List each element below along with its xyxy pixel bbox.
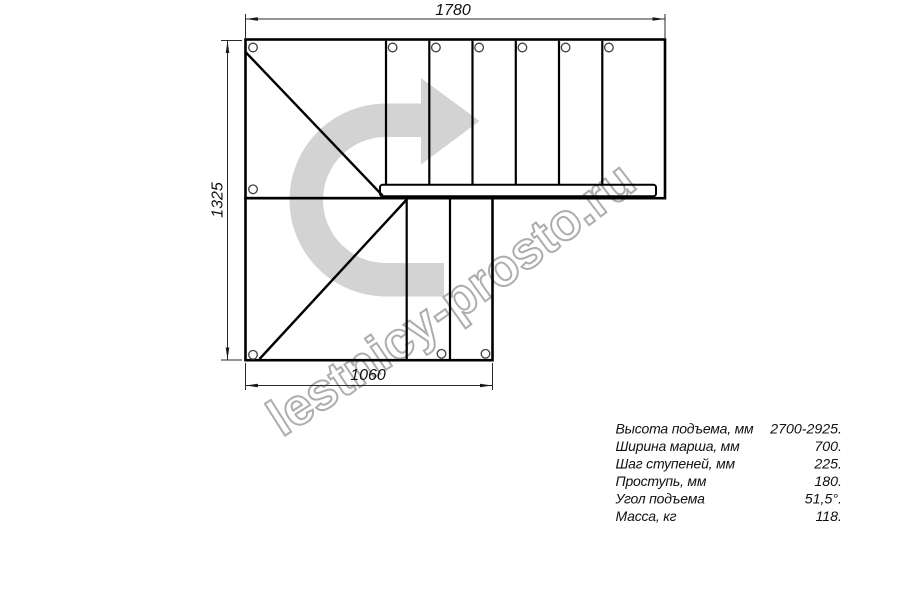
svg-text:700.: 700. — [814, 439, 842, 455]
svg-text:1780: 1780 — [435, 2, 471, 19]
svg-text:Масса, кг: Масса, кг — [616, 508, 677, 524]
svg-text:180.: 180. — [814, 474, 842, 490]
svg-text:Высота подъема, мм: Высота подъема, мм — [616, 421, 755, 437]
svg-text:Проступь, мм: Проступь, мм — [616, 473, 707, 489]
svg-text:51,5°.: 51,5°. — [805, 492, 842, 508]
svg-text:Шаг ступеней, мм: Шаг ступеней, мм — [616, 456, 736, 472]
svg-text:1060: 1060 — [350, 367, 386, 384]
svg-text:Ширина марша, мм: Ширина марша, мм — [616, 438, 741, 454]
svg-text:225.: 225. — [813, 457, 842, 473]
svg-text:118.: 118. — [815, 509, 842, 525]
svg-text:2700-2925.: 2700-2925. — [769, 422, 842, 438]
svg-text:Угол подъема: Угол подъема — [615, 491, 706, 507]
svg-text:1325: 1325 — [210, 182, 227, 218]
